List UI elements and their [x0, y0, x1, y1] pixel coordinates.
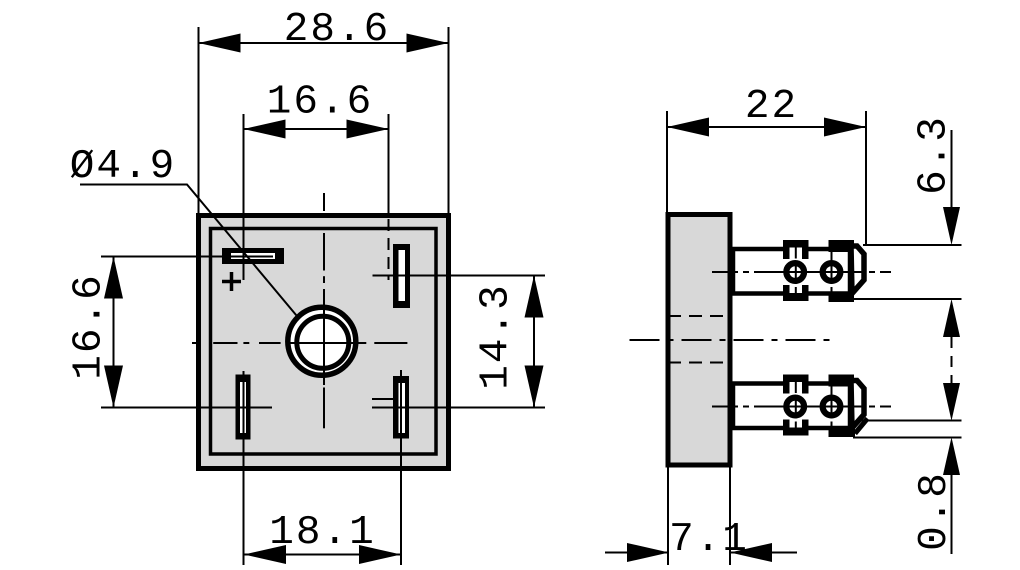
svg-text:18.1: 18.1: [269, 510, 375, 556]
svg-text:Ø4.9: Ø4.9: [70, 144, 176, 190]
svg-text:6.3: 6.3: [912, 115, 958, 195]
svg-text:28.6: 28.6: [284, 7, 390, 53]
svg-text:14.3: 14.3: [474, 283, 520, 389]
svg-text:16.6: 16.6: [67, 273, 113, 379]
svg-text:22: 22: [745, 84, 798, 130]
svg-text:7.1: 7.1: [669, 517, 749, 563]
svg-text:0.8: 0.8: [912, 471, 958, 551]
svg-text:16.6: 16.6: [267, 80, 373, 126]
